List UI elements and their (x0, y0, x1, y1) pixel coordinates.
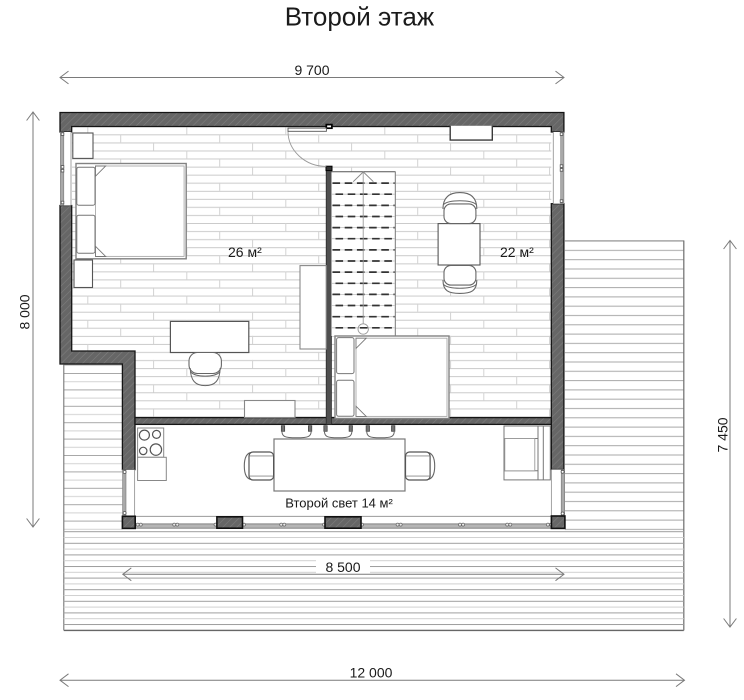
svg-text:26 м²: 26 м² (228, 244, 262, 260)
svg-text:Второй свет 14 м²: Второй свет 14 м² (285, 496, 393, 511)
svg-text:8 500: 8 500 (325, 559, 360, 575)
svg-text:7 450: 7 450 (714, 417, 730, 452)
svg-text:9 700: 9 700 (294, 62, 329, 78)
svg-text:22 м²: 22 м² (500, 244, 534, 260)
svg-text:12 000: 12 000 (350, 665, 393, 681)
svg-text:8 000: 8 000 (17, 294, 33, 329)
svg-text:Второй этаж: Второй этаж (285, 2, 435, 32)
